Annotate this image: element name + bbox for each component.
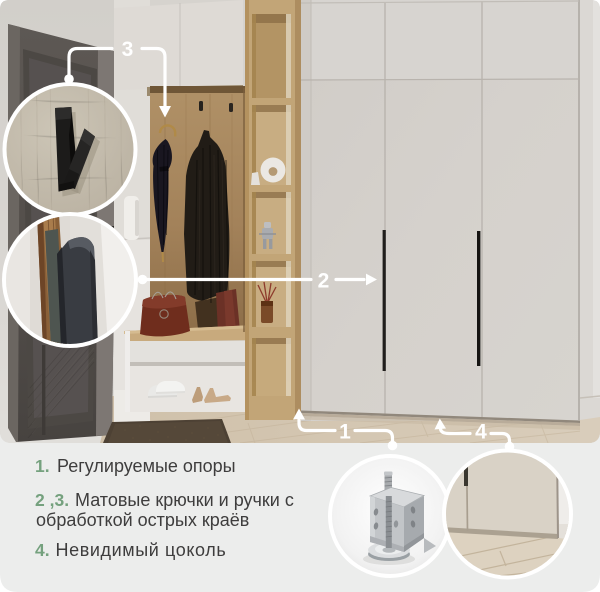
- svg-text:4: 4: [475, 421, 487, 444]
- svg-text:2 ,3.: 2 ,3.: [35, 490, 69, 510]
- svg-text:обработкой острых краёв: обработкой острых краёв: [36, 510, 249, 530]
- svg-text:1: 1: [339, 421, 351, 444]
- svg-text:4.: 4.: [35, 540, 50, 560]
- svg-text:3: 3: [122, 38, 134, 61]
- svg-text:Матовые крючки и ручки с: Матовые крючки и ручки с: [75, 490, 294, 510]
- svg-text:1.: 1.: [35, 456, 50, 476]
- svg-text:Невидимый цоколь: Невидимый цоколь: [56, 540, 227, 560]
- svg-text:2: 2: [318, 270, 330, 293]
- svg-text:Регулируемые опоры: Регулируемые опоры: [57, 456, 236, 476]
